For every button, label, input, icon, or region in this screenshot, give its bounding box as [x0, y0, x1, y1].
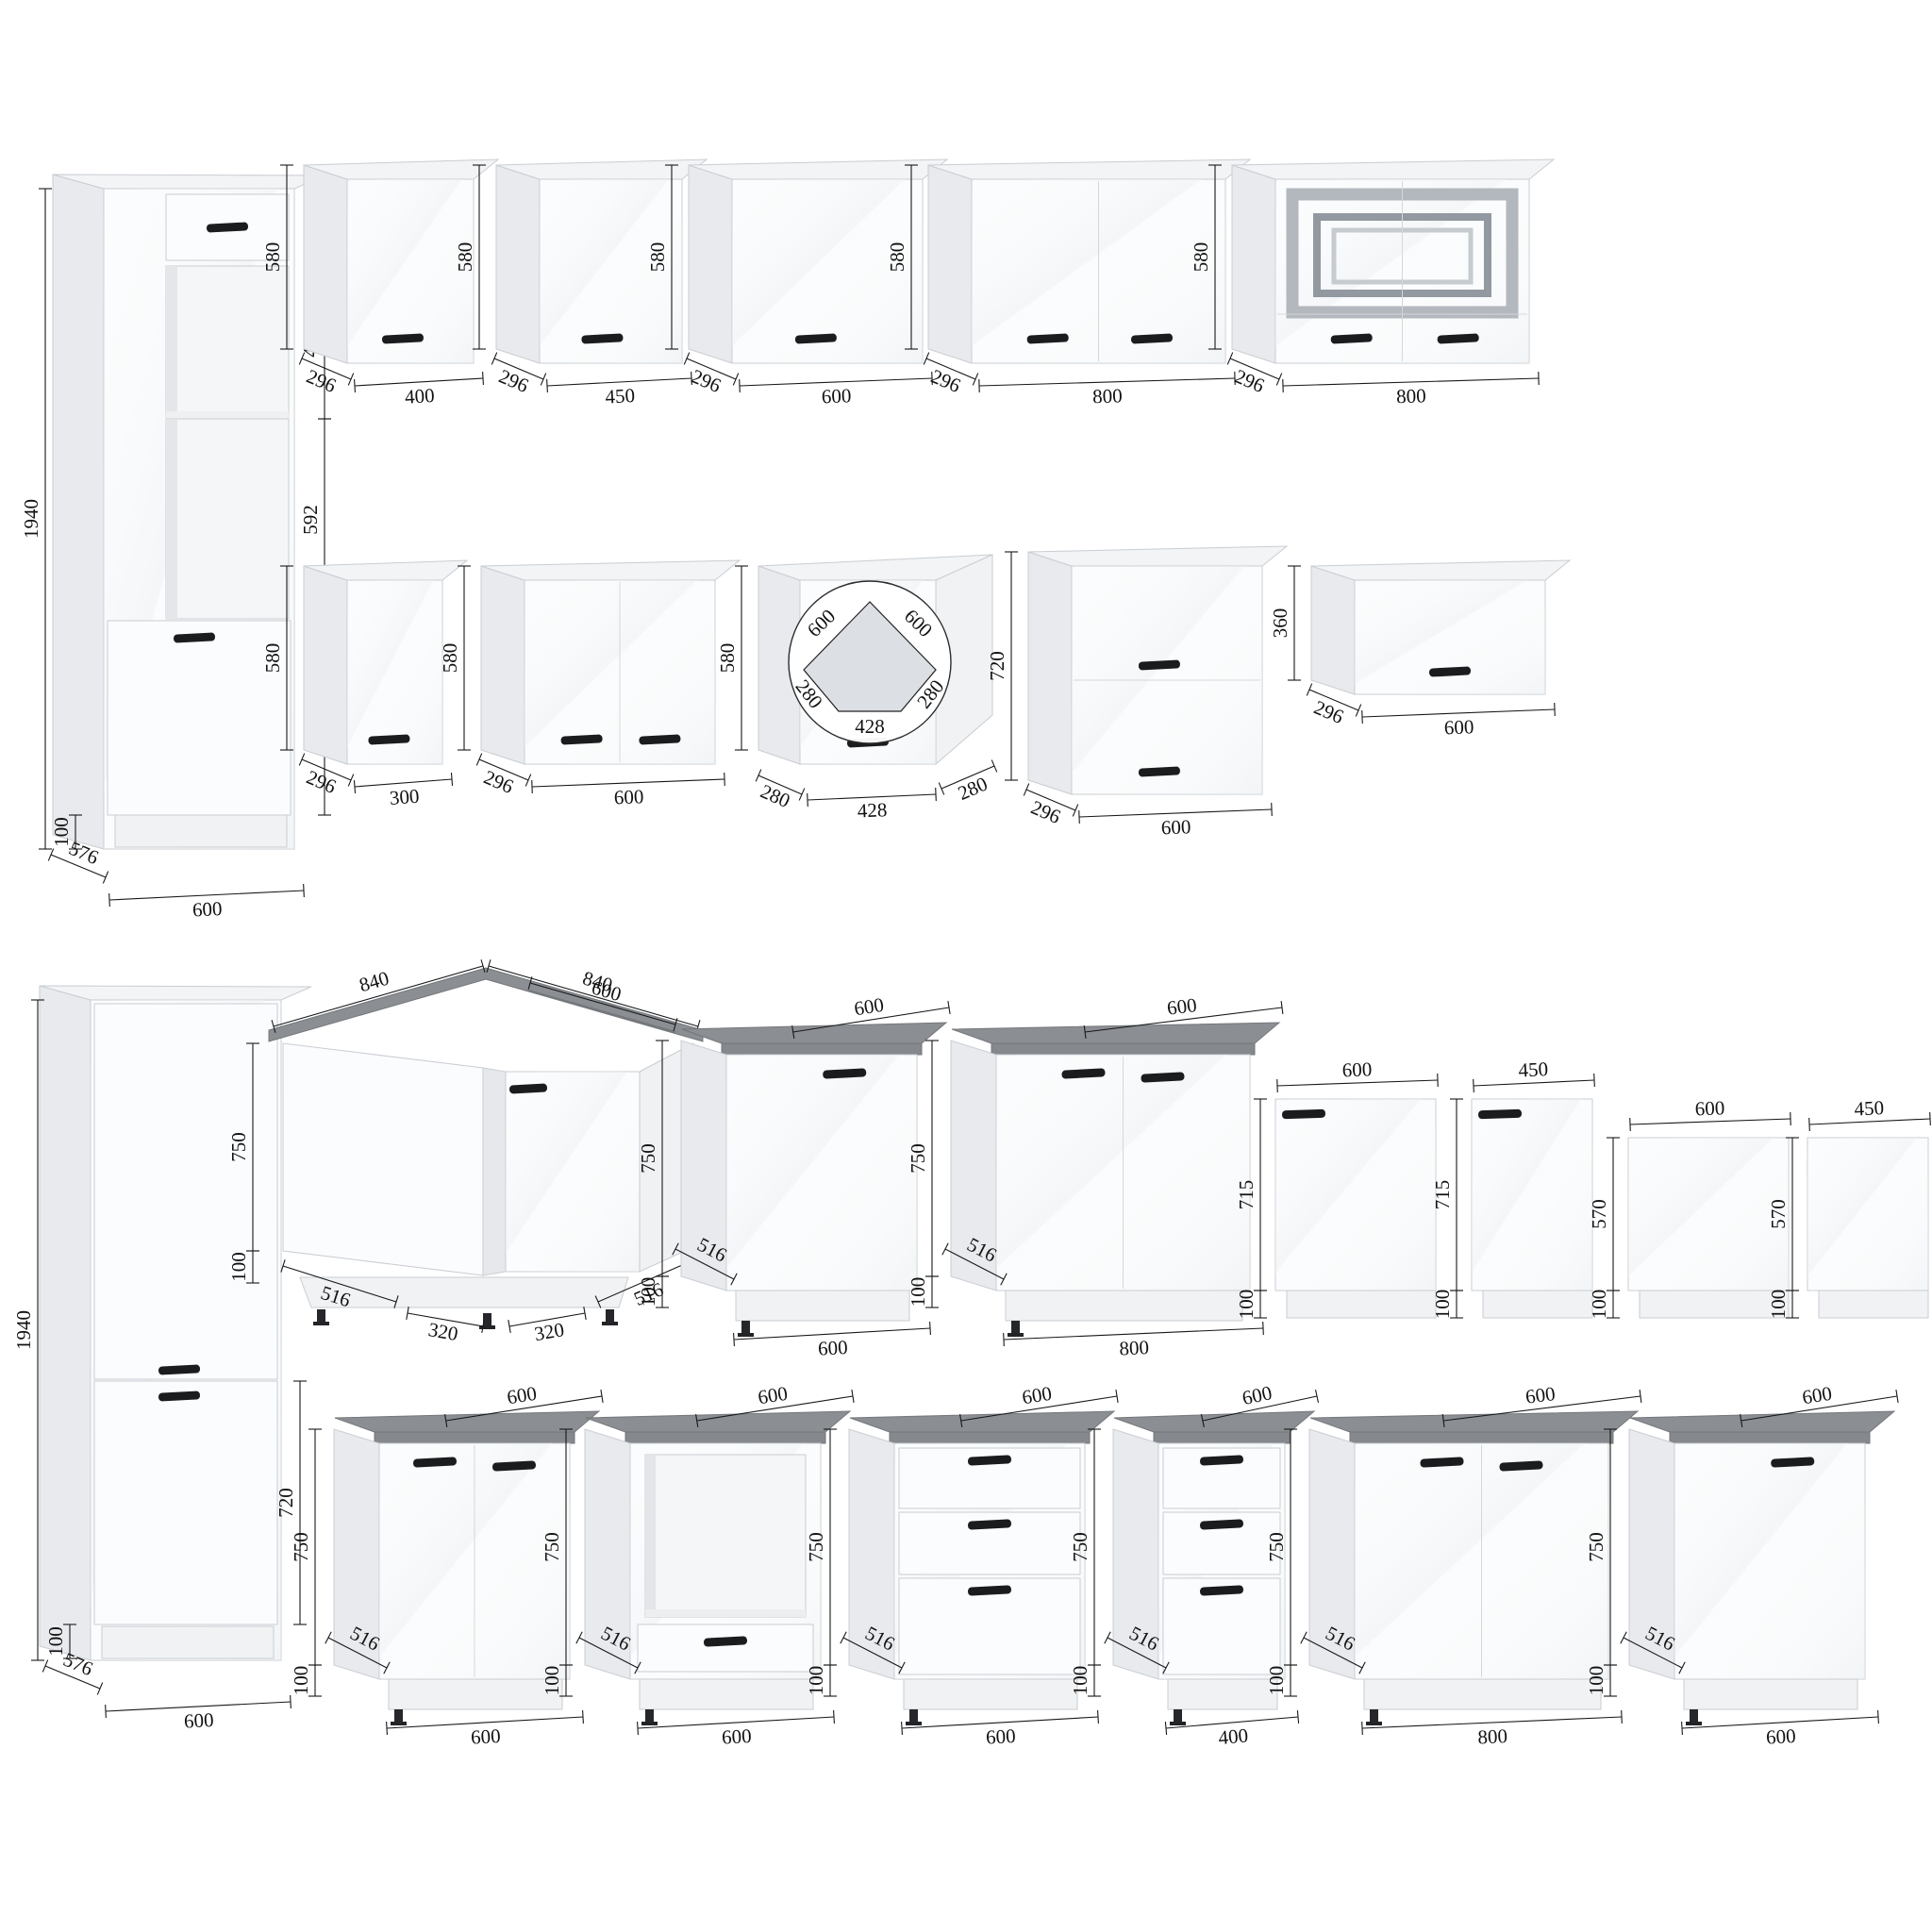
cabinet-side	[304, 165, 347, 363]
base-cabinet-600-door: 750100516600600	[637, 993, 950, 1360]
dimension-label: 580	[454, 242, 476, 273]
dimension-label: 100	[1767, 1290, 1790, 1320]
wall-cabinet-600-h360: 360296600	[1269, 560, 1570, 739]
dimension-label: 600	[1241, 1381, 1274, 1409]
base-cabinet-800-two-door: 750100516800600	[907, 993, 1283, 1359]
dimension-label: 296	[1231, 365, 1267, 397]
dimension-label: 360	[1269, 608, 1291, 639]
worktop	[850, 1411, 1114, 1432]
dimension-label: 450	[1854, 1096, 1885, 1120]
cabinet-top	[928, 159, 1250, 179]
cabinet-leg-foot	[1366, 1722, 1382, 1725]
dimension-label: 428	[857, 798, 888, 822]
cabinet-side	[496, 165, 540, 363]
dimension-label: 100	[907, 1277, 929, 1307]
dimension-label: 600	[506, 1382, 539, 1409]
plinth	[904, 1679, 1077, 1709]
dimension-label: 580	[261, 242, 284, 273]
dimension-label: 428	[855, 715, 885, 738]
cabinet-leg	[741, 1321, 750, 1333]
dimension-label: 296	[688, 365, 724, 397]
cabinet-top	[1028, 546, 1287, 566]
oven-niche-shelf	[645, 1609, 806, 1617]
cabinet-leg	[394, 1709, 403, 1722]
dimension-label: 296	[495, 365, 531, 397]
worktop	[952, 1023, 1279, 1043]
cabinet-side	[481, 566, 525, 764]
dimension-label: 580	[646, 242, 669, 273]
door-handle	[1282, 1109, 1325, 1120]
dimension-label: 570	[1767, 1199, 1790, 1229]
dimension-label: 720	[986, 651, 1008, 681]
plinth	[1819, 1291, 1928, 1318]
cabinet-leg	[1370, 1709, 1378, 1722]
wall-cabinet-600: 580296600	[646, 159, 947, 408]
dimension-label: 800	[1119, 1336, 1150, 1359]
front-panel-450-short: 450570100	[1767, 1096, 1931, 1319]
dimension-label: 750	[1069, 1532, 1091, 1562]
dimension-label: 580	[261, 643, 284, 674]
dimension-label: 1940	[20, 499, 42, 539]
cabinet-leg-foot	[602, 1322, 618, 1325]
dimension-label: 600	[757, 1382, 790, 1409]
dimension-label: 100	[44, 1626, 67, 1657]
dimension-label: 600	[613, 785, 643, 808]
wall-cabinet-400: 580296400	[261, 159, 498, 408]
dimension-label: 580	[716, 643, 739, 674]
dimension-label: 840	[357, 967, 391, 997]
dimension-label: 750	[1585, 1532, 1607, 1562]
cabinet-leg-foot	[906, 1722, 922, 1725]
cabinet-side	[304, 566, 347, 764]
worktop-edge	[722, 1043, 922, 1055]
dimension-label: 100	[805, 1666, 827, 1696]
worktop	[1310, 1411, 1638, 1432]
oven-niche	[645, 1455, 806, 1617]
dimension-label: 100	[1265, 1666, 1288, 1696]
dimension-label: 296	[480, 766, 516, 798]
gloss-highlight	[1275, 1099, 1436, 1291]
dimension-label: 100	[1431, 1290, 1454, 1320]
dimension-label: 296	[303, 365, 339, 397]
dimension-label: 100	[50, 817, 73, 847]
worktop-edge	[890, 1432, 1090, 1443]
dimension-label: 600	[1443, 715, 1474, 739]
cabinet-leg-foot	[738, 1333, 754, 1337]
wall-cabinet-600-h720: 720296600	[986, 546, 1287, 839]
cabinet-leg	[606, 1309, 614, 1322]
dimension-label: 750	[907, 1143, 929, 1174]
dimension-label: 600	[470, 1724, 501, 1749]
plinth	[1006, 1291, 1242, 1321]
dimension-label: 600	[821, 384, 851, 408]
niche-wall	[166, 419, 177, 619]
worktop-edge	[375, 1432, 575, 1443]
base-cabinet-600-door-b: 750100516600600	[1585, 1382, 1898, 1749]
worktop-edge	[1670, 1432, 1870, 1443]
dimension-label: 600	[721, 1724, 752, 1749]
wall-cabinet-600-two-door: 580296600	[439, 560, 740, 808]
plinth	[640, 1679, 813, 1709]
dimension-label: 750	[1265, 1532, 1288, 1562]
dimension-label: 570	[1588, 1199, 1610, 1229]
dimension-label: 296	[303, 766, 339, 798]
door-front	[94, 1381, 277, 1624]
cabinet-leg	[483, 1313, 491, 1325]
dimension-label: 715	[1431, 1180, 1454, 1210]
dimension-label: 600	[1765, 1724, 1796, 1749]
cabinet-leg	[317, 1309, 325, 1322]
dimension-label: 100	[1585, 1666, 1607, 1696]
cabinet-leg	[909, 1709, 918, 1722]
cabinet-leg-foot	[641, 1722, 658, 1725]
open-niche	[166, 419, 289, 619]
dimension-label: 100	[637, 1277, 659, 1307]
gloss-highlight	[1628, 1138, 1789, 1291]
dimension-label: 100	[1588, 1290, 1610, 1320]
dimension-label: 600	[1160, 815, 1191, 839]
worktop	[586, 1411, 850, 1432]
cabinet-top	[689, 159, 947, 179]
dimension-label: 580	[1190, 242, 1212, 273]
dimension-label: 600	[183, 1708, 214, 1733]
cabinet-leg-foot	[391, 1722, 407, 1725]
cabinet-leg-foot	[1008, 1333, 1024, 1337]
dimension-label: 600	[1524, 1382, 1557, 1408]
dimension-label: 296	[927, 365, 963, 397]
cabinet-leg	[1011, 1321, 1020, 1333]
niche-wall	[166, 266, 177, 417]
cabinet-leg	[1174, 1709, 1182, 1722]
dimension-label: 320	[426, 1318, 459, 1345]
plinth	[1287, 1291, 1436, 1318]
cabinet-side	[53, 175, 104, 849]
dimension-label: 450	[605, 384, 636, 408]
dimension-label: 296	[1310, 696, 1346, 728]
plinth	[736, 1291, 909, 1321]
tall-fridge-housing-600: 1940720100576600	[12, 986, 311, 1733]
cabinet-leg	[1690, 1709, 1698, 1722]
wall-cabinet-450: 580296450	[454, 159, 707, 408]
worktop-edge	[991, 1043, 1255, 1055]
cabinet-leg-foot	[1686, 1722, 1702, 1725]
dimension-label: 715	[1235, 1180, 1257, 1210]
dimension-label: 320	[533, 1318, 566, 1345]
dimension-label: 100	[290, 1666, 312, 1696]
dimension-label: 300	[389, 785, 420, 809]
front-panel-450-tall: 450715100	[1431, 1058, 1595, 1319]
cabinet-side	[1311, 566, 1355, 694]
dimension-label: 600	[192, 897, 223, 922]
cabinet-top	[1232, 159, 1554, 179]
cabinet-side	[40, 986, 91, 1660]
door-handle	[1478, 1109, 1522, 1120]
worktop-edge	[1350, 1432, 1613, 1443]
cabinet-top	[481, 560, 740, 580]
plinth	[1168, 1679, 1277, 1709]
dimension-label: 750	[637, 1143, 659, 1174]
gloss-highlight	[726, 1055, 917, 1291]
dimension-label: 600	[1166, 993, 1198, 1020]
worktop-edge	[625, 1432, 825, 1443]
dimension-label: 580	[439, 643, 461, 674]
dimension-label: 800	[1396, 384, 1426, 408]
wall-cabinet-800-two-door: 580296800	[886, 159, 1250, 408]
dimension-label: 600	[853, 993, 886, 1021]
plinth	[1364, 1679, 1601, 1709]
dimension-label: 750	[227, 1132, 250, 1162]
dimension-label: 600	[1021, 1382, 1054, 1409]
dimension-label: 592	[299, 505, 322, 535]
dimension-label: 600	[1341, 1058, 1372, 1081]
cabinet-leg	[645, 1709, 654, 1722]
plinth	[102, 1626, 274, 1658]
dimension-label: 580	[886, 242, 908, 273]
worktop	[269, 968, 703, 1041]
cabinet-side	[1028, 552, 1072, 794]
wall-cabinet-corner: 600600280280428580280428280	[716, 555, 997, 822]
worktop-edge	[1154, 1432, 1290, 1443]
cabinet-leg-foot	[313, 1322, 329, 1325]
front-panel-600-tall: 600715100	[1235, 1058, 1438, 1319]
cabinet-leg-foot	[1170, 1722, 1186, 1725]
corner-inner-shade	[483, 1068, 506, 1275]
cabinet-top	[1311, 560, 1570, 580]
dimension-label: 720	[275, 1488, 297, 1518]
gloss-highlight	[1472, 1099, 1592, 1291]
dimension-label: 600	[1801, 1382, 1834, 1409]
dimension-label: 800	[1477, 1724, 1508, 1748]
cabinet-side	[928, 165, 972, 363]
cabinet-dimension-diagram: 1940450592570100576600580296400580296450…	[0, 0, 1932, 1932]
base-cabinet-corner: 840840600750100516320320516	[227, 959, 703, 1345]
dimension-label: 400	[1218, 1724, 1249, 1749]
gloss-highlight	[1807, 1138, 1928, 1291]
cabinet-side	[689, 165, 732, 363]
dimension-label: 280	[955, 773, 991, 805]
dimension-label: 750	[290, 1532, 312, 1562]
dimension-label: 600	[1694, 1096, 1724, 1120]
front-panel-600-short: 600570100	[1588, 1096, 1790, 1319]
open-niche	[166, 266, 289, 417]
gloss-highlight	[1355, 580, 1545, 694]
gloss-highlight	[1674, 1443, 1865, 1679]
door-front	[94, 1004, 277, 1379]
tall-oven-housing-600: 1940450592570100576600	[20, 175, 331, 922]
plinth	[389, 1679, 562, 1709]
worktop	[1630, 1411, 1894, 1432]
dimension-label: 100	[1235, 1290, 1257, 1320]
dimension-label: 280	[758, 779, 793, 812]
dimension-label: 100	[1069, 1666, 1091, 1696]
dimension-label: 296	[1027, 796, 1063, 828]
wall-cabinet-800-glass: 580296800	[1190, 159, 1554, 408]
dimension-label: 600	[985, 1724, 1016, 1749]
drawer-front	[638, 1624, 813, 1672]
dimension-label: 750	[541, 1532, 563, 1562]
corner-left-front	[283, 1043, 483, 1275]
dimension-label: 450	[1518, 1058, 1549, 1081]
cabinet-side	[1232, 165, 1275, 363]
oven-niche-wall	[645, 1455, 656, 1617]
gloss-highlight	[506, 1072, 640, 1272]
dimension-label: 400	[404, 384, 435, 408]
dimension-label: 100	[541, 1666, 563, 1696]
dimension-label: 750	[805, 1532, 827, 1562]
plinth	[115, 815, 287, 847]
plinth	[1684, 1679, 1857, 1709]
shelf	[166, 411, 289, 419]
dimension-label: 100	[227, 1252, 250, 1282]
dimension-label: 800	[1092, 384, 1123, 408]
dimension-label: 1940	[12, 1310, 35, 1350]
worktop	[682, 1023, 946, 1043]
dimension-label: 600	[817, 1336, 848, 1360]
diagram-canvas: 1940450592570100576600580296400580296450…	[0, 0, 1932, 1932]
plinth	[1483, 1291, 1592, 1318]
